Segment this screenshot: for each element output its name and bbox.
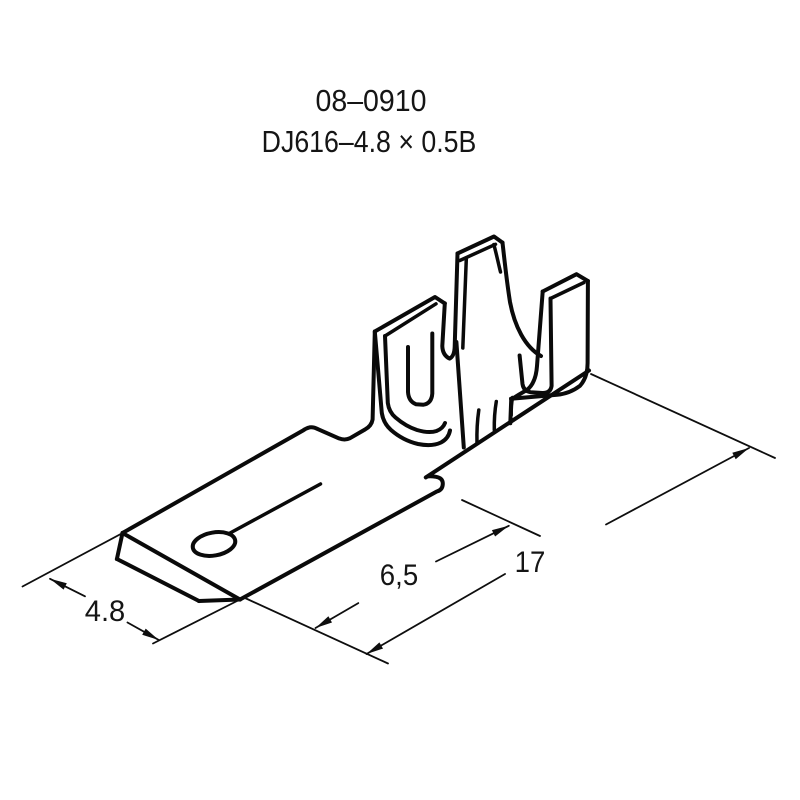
svg-text:4.8: 4.8 xyxy=(85,595,125,628)
svg-text:DJ616–4.8 × 0.5B: DJ616–4.8 × 0.5B xyxy=(262,125,477,159)
svg-text:6,5: 6,5 xyxy=(380,559,418,592)
svg-text:08–0910: 08–0910 xyxy=(316,84,427,118)
svg-text:17: 17 xyxy=(515,546,546,579)
